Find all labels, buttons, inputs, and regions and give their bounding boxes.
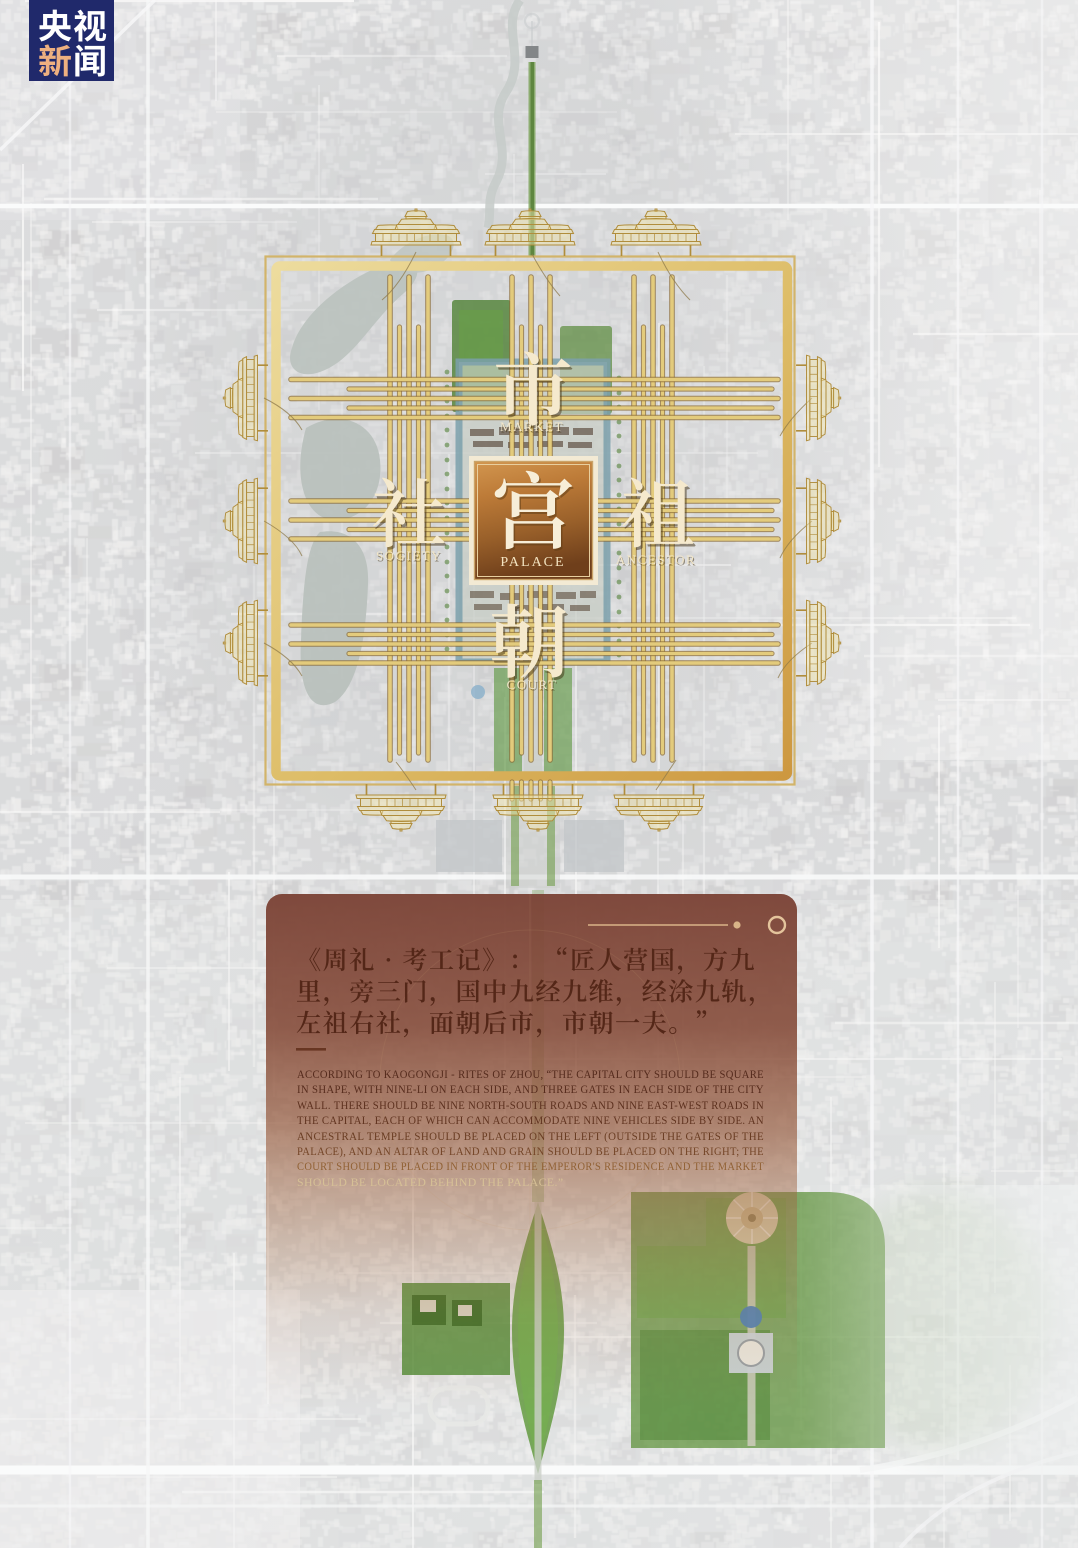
svg-text:COURT: COURT bbox=[507, 677, 558, 692]
svg-text:ANCESTRAL TEMPLE SHOULD BE PLA: ANCESTRAL TEMPLE SHOULD BE PLACED ON THE… bbox=[297, 1129, 764, 1143]
svg-text:SHOULD BE LOCATED BEHIND THE P: SHOULD BE LOCATED BEHIND THE PALACE.” bbox=[297, 1175, 563, 1189]
svg-text:COURT SHOULD BE PLACED IN FRON: COURT SHOULD BE PLACED IN FRONT OF THE E… bbox=[297, 1159, 764, 1173]
svg-text:MARKET: MARKET bbox=[500, 419, 564, 434]
svg-text:ANCESTOR: ANCESTOR bbox=[616, 552, 696, 567]
svg-text:WALL. THERE SHOULD BE NINE NOR: WALL. THERE SHOULD BE NINE NORTH-SOUTH R… bbox=[297, 1098, 764, 1112]
svg-text:THE CAPITAL, EACH OF WHICH CAN: THE CAPITAL, EACH OF WHICH CAN ACCOMMODA… bbox=[297, 1113, 764, 1127]
svg-text:ACCORDING TO KAOGONGJI - RITES: ACCORDING TO KAOGONGJI - RITES OF ZHOU, … bbox=[297, 1067, 764, 1081]
svg-text:PALACE: PALACE bbox=[500, 555, 565, 570]
svg-text:IN SHAPE, WITH NINE-LI ON EACH: IN SHAPE, WITH NINE-LI ON EACH SIDE, AND… bbox=[297, 1082, 764, 1096]
svg-text:SOGIETY: SOGIETY bbox=[376, 548, 442, 563]
svg-text:PALACE), AND AN ALTAR OF LAND: PALACE), AND AN ALTAR OF LAND AND GRAIN … bbox=[297, 1144, 764, 1158]
